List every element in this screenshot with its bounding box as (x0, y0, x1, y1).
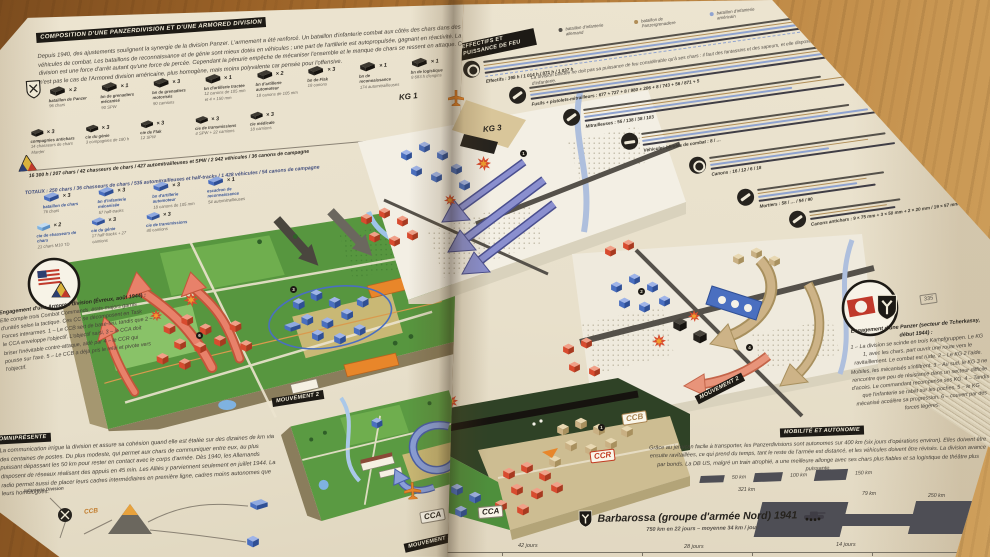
step-marker: 2 (638, 288, 645, 295)
photo-of-open-book: COMPOSITION D'UNE PANZERDIVISION ET D'UN… (0, 0, 990, 557)
km-box-50 (699, 475, 724, 483)
barbarossa-shield-icon (577, 510, 592, 528)
axis-tick (872, 552, 873, 556)
legend-dot (710, 12, 714, 16)
segment-duration-3: 14 jours (836, 543, 856, 549)
step-marker: 4 (746, 344, 753, 351)
axis-tick (502, 552, 503, 556)
legend-dot (634, 20, 638, 24)
legend-dot (558, 28, 562, 32)
soldier-icon (462, 60, 481, 79)
legend-dot (785, 4, 789, 8)
machinegun-icon (562, 108, 581, 127)
legend-item: bataillon de Panzergrenadiere (634, 13, 697, 30)
timeline-block-2 (908, 501, 990, 534)
panzer-shield-icon (878, 295, 897, 319)
tank-icon (802, 509, 826, 521)
segment-duration-1: 42 jours (518, 544, 538, 550)
km-box-150 (814, 469, 848, 481)
legend-item: bataillon d'infanterie blindée américain (785, 0, 848, 14)
segment-distance-2: 79 km (862, 492, 876, 497)
barbarossa-title: Barbarossa (groupe d'armée Nord) 1941 (597, 509, 797, 524)
segment-duration-2: 28 jours (684, 545, 704, 551)
cannon-icon (688, 156, 707, 175)
legend-item: bataillon d'infanterie allemand (558, 21, 621, 38)
engagement-panzer-body: 1 – La division se scinde en trois Kampf… (848, 332, 990, 417)
step-marker: 1 (598, 424, 605, 431)
halftrack-icon (620, 132, 639, 151)
km-box-100 (753, 472, 783, 482)
mortar-icon (736, 188, 755, 207)
cca-label: CCA (478, 505, 504, 519)
engagement-panzer-block: Engagement d'une Panzer (secteur de Tche… (846, 316, 990, 417)
segment-distance-1: 321 km (738, 488, 755, 493)
segment-distance-3: 250 km (928, 494, 945, 499)
axis-tick (752, 552, 753, 556)
mobility-title-banner: MOBILITÉ ET AUTONOMIE (780, 426, 864, 438)
page-number: 335 (919, 293, 937, 306)
axis-tick (642, 552, 643, 556)
rifle-icon (508, 86, 527, 105)
timeline-axis (432, 552, 988, 553)
